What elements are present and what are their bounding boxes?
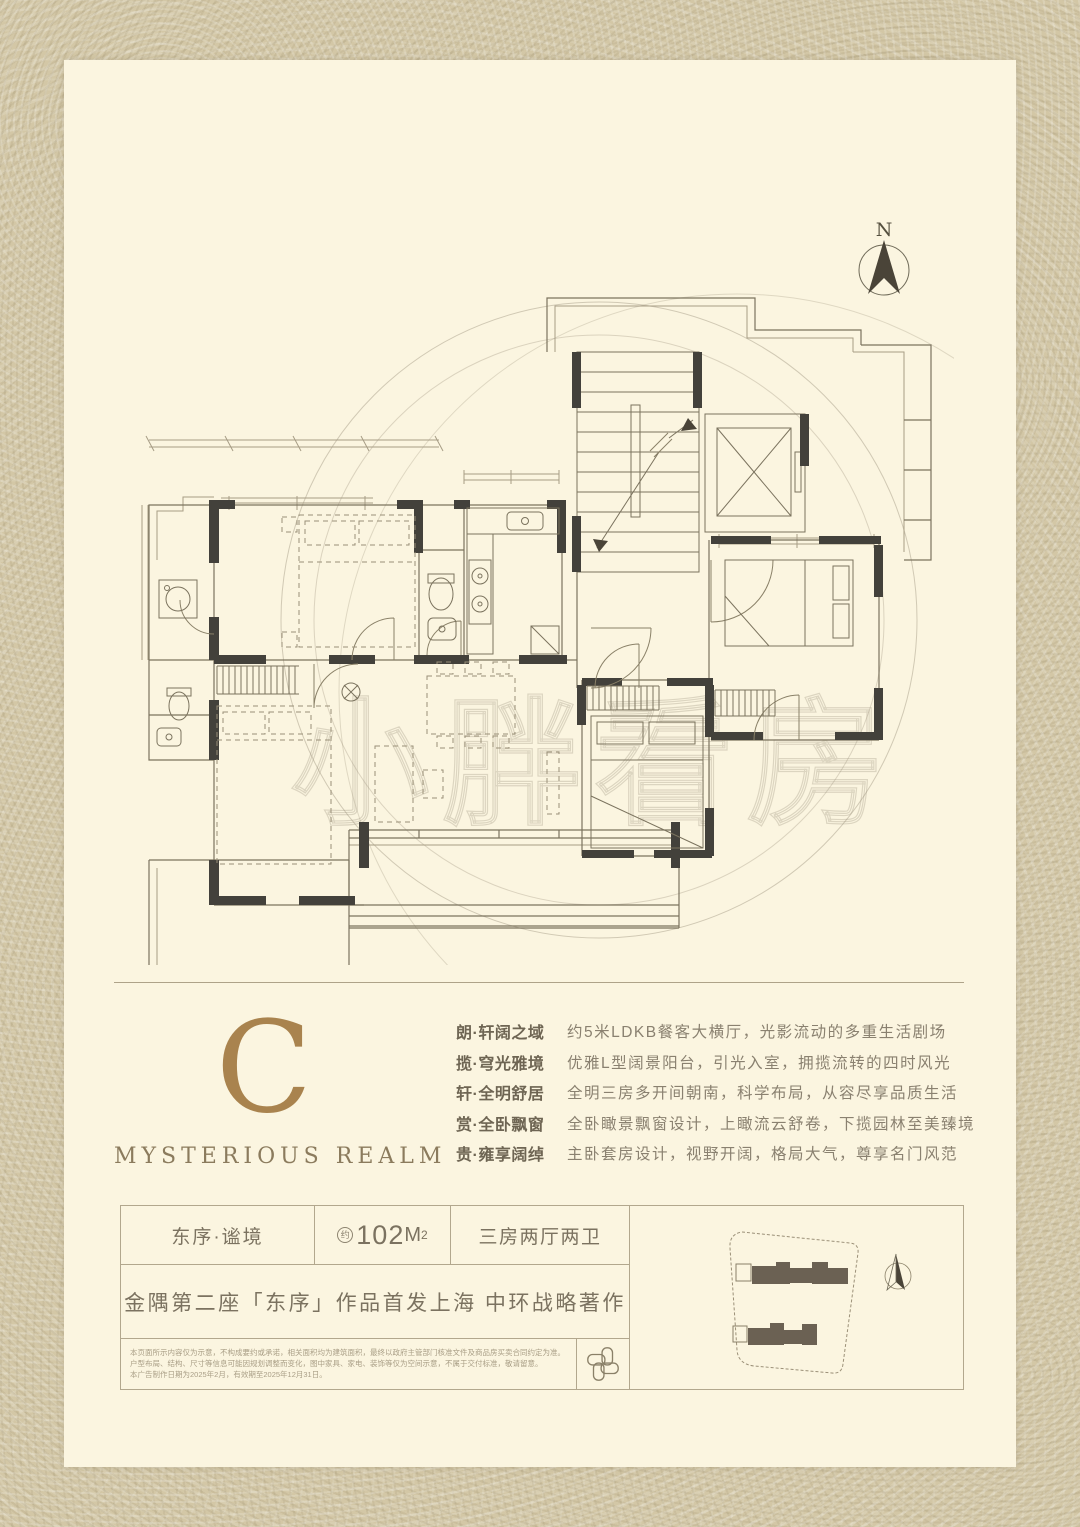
disclaimer-line: 本页面所示内容仅为示意，不构成要约或承诺，相关面积均为建筑面积，最终以政府主管部… — [130, 1347, 567, 1358]
section-divider — [114, 982, 964, 983]
north-arrow-icon — [885, 1254, 911, 1290]
feature-row: 朗·轩阔之域 约5米LDKB餐客大横厅，光影流动的多重生活剧场 — [456, 1016, 975, 1047]
feature-list: 朗·轩阔之域 约5米LDKB餐客大横厅，光影流动的多重生活剧场 揽·穹光雅境 优… — [456, 1002, 975, 1169]
feature-label: 轩·全明舒居 — [456, 1080, 554, 1104]
plan-echo-lines — [142, 306, 904, 965]
poster-page: 小胖看房 — [64, 60, 1016, 1467]
info-table-left: 东序·谧境 约102M2 三房两厅两卫 金隅第二座「东序」作品首发上海 中环战略… — [121, 1206, 630, 1389]
area-value: 102 — [356, 1220, 404, 1251]
site-buildings — [748, 1262, 848, 1345]
washing-machine-icon — [159, 580, 197, 618]
feature-label: 揽·穹光雅境 — [456, 1050, 554, 1074]
features-section: C MYSTERIOUS REALM 朗·轩阔之域 约5米LDKB餐客大横厅，光… — [114, 1002, 966, 1169]
disclaimer-row: 本页面所示内容仅为示意，不构成要约或承诺，相关面积均为建筑面积，最终以政府主管部… — [121, 1339, 629, 1389]
feature-row: 轩·全明舒居 全明三房多开间朝南，科学布局，从容尽享品质生活 — [456, 1077, 975, 1108]
disclaimer-line: 户型布局、结构、尺寸等信息可能因规划调整而变化，图中家具、家电、装饰等仅为空间示… — [130, 1358, 567, 1369]
feature-desc: 约5米LDKB餐客大横厅，光影流动的多重生活剧场 — [567, 1020, 947, 1042]
siteplan-panel — [630, 1206, 964, 1389]
info-table: 东序·谧境 约102M2 三房两厅两卫 金隅第二座「东序」作品首发上海 中环战略… — [120, 1205, 964, 1390]
poster-root: { "plan": { "compass_label": "N", "water… — [0, 0, 1080, 1527]
brand-logo-cell — [577, 1339, 629, 1389]
disclaimer-text: 本页面所示内容仅为示意，不构成要约或承诺，相关面积均为建筑面积，最终以政府主管部… — [121, 1339, 577, 1389]
siteplan-svg — [630, 1206, 964, 1389]
approx-circle-icon: 约 — [337, 1227, 353, 1243]
feature-label: 赏·全卧飘窗 — [456, 1111, 554, 1135]
feature-row: 赏·全卧飘窗 全卧瞰景飘窗设计，上瞰流云舒卷，下揽园林至美臻境 — [456, 1108, 975, 1139]
unit-card: C MYSTERIOUS REALM — [114, 1002, 414, 1169]
kitchen-counter — [467, 508, 559, 654]
feature-desc: 全明三房多开间朝南，科学布局，从容尽享品质生活 — [567, 1081, 958, 1103]
feature-row: 贵·雍享阔绰 主卧套房设计，视野开阔，格局大气，尊享名门风范 — [456, 1138, 975, 1169]
area-unit: M — [404, 1224, 421, 1247]
floorplan-svg: 小胖看房 — [139, 195, 954, 965]
feature-desc: 全卧瞰景飘窗设计，上瞰流云舒卷，下揽园林至美臻境 — [567, 1112, 975, 1134]
disclaimer-line: 本广告制作日期为2025年2月，有效期至2025年12月31日。 — [130, 1369, 567, 1380]
toilet-icon-2 — [428, 574, 454, 610]
info-header-row: 东序·谧境 约102M2 三房两厅两卫 — [121, 1206, 629, 1265]
feature-row: 揽·穹光雅境 优雅L型阔景阳台，引光入室，拥揽流转的四时风光 — [456, 1047, 975, 1078]
unit-name: 东序·谧境 — [121, 1206, 314, 1264]
unit-layout: 三房两厅两卫 — [450, 1206, 629, 1264]
brand-logo-icon — [584, 1345, 622, 1383]
feature-desc: 优雅L型阔景阳台，引光入室，拥揽流转的四时风光 — [567, 1051, 951, 1073]
slogan: 金隅第二座「东序」作品首发上海 中环战略著作 — [121, 1265, 629, 1339]
compass-icon: N — [859, 219, 909, 295]
feature-label: 贵·雍享阔绰 — [456, 1141, 554, 1165]
area-exponent: 2 — [421, 1228, 428, 1242]
site-boundary — [730, 1232, 858, 1373]
unit-area: 约102M2 — [314, 1206, 450, 1264]
unit-subtitle: MYSTERIOUS REALM — [114, 1144, 414, 1169]
plan-outline — [149, 298, 931, 965]
watermark-text: 小胖看房 — [291, 688, 899, 842]
right-room-bed — [725, 560, 853, 646]
unit-letter: C — [114, 1002, 414, 1134]
feature-desc: 主卧套房设计，视野开阔，格局大气，尊享名门风范 — [567, 1142, 958, 1164]
feature-label: 朗·轩阔之域 — [456, 1019, 554, 1043]
compass-label: N — [876, 219, 893, 241]
